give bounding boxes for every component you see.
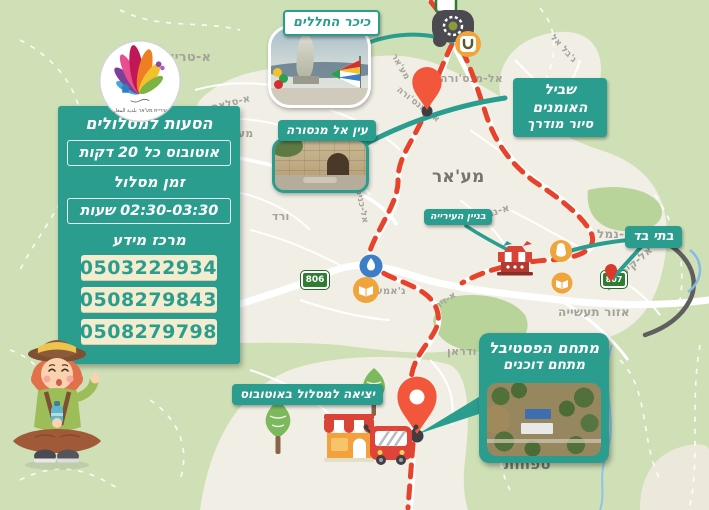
ein-al-mansura-photo[interactable] (272, 138, 369, 193)
municipality-logo: עיריית מע'אר بلدية المغار (97, 39, 183, 125)
logo-text: עיריית מע'אר بلدية المغار (112, 108, 167, 114)
artists-trail-line2: סיור מודרך (518, 117, 602, 133)
book-landmark-icon (353, 277, 379, 303)
photo-plaza (271, 88, 368, 105)
aerial-blue-roof (525, 409, 551, 419)
festival-line1: מתחם הפסטיבל (479, 339, 609, 357)
shop-icon (324, 414, 374, 462)
olive-press-icon (550, 240, 572, 262)
panel-info-center: מרכז מידע (58, 231, 240, 249)
bus-departure-label: יציאה למסלול באוטובוס (240, 387, 375, 401)
olive-presses-label: בתי בד (633, 229, 674, 244)
panel-bus-frequency: אוטובוס כל 20 דקות (67, 140, 231, 166)
panel-route-time-label: זמן מסלול (58, 173, 240, 191)
callout-artists-trail[interactable]: שביל האומנים סיור מודרך (513, 78, 607, 137)
phone-number-2[interactable]: 0508279843 (81, 287, 217, 313)
marker-807-icon (605, 264, 617, 282)
phone-number-1[interactable]: 0503222934 (81, 255, 217, 281)
monument-icon (455, 31, 481, 57)
festival-map: א-טריק א-סלאם מערב אל-מנס'ורה מע'אר ורד … (0, 0, 709, 510)
callout-olive-presses[interactable]: בתי בד (625, 226, 682, 248)
aerial-road (487, 439, 601, 443)
callout-bus-departure[interactable]: יציאה למסלול באוטובוס (232, 384, 383, 405)
callout-connectors (352, 35, 641, 277)
festival-line2: מתחם דוכנים (479, 357, 609, 373)
aerial-white-building (521, 423, 553, 434)
festival-card[interactable]: מתחם הפסטיבל מתחם דוכנים (479, 333, 609, 463)
callout-city-hall[interactable]: בניין העירייה (424, 209, 492, 225)
photo-sculpture-3 (274, 80, 283, 89)
callout-memorial-square[interactable]: כיכר החללים (283, 10, 380, 36)
photo-pedestal (293, 76, 319, 84)
callout-ein-al-mansura[interactable]: עין אל מנסורה (278, 120, 376, 141)
festival-aerial-photo (487, 383, 601, 456)
photo-path (303, 177, 337, 183)
tree-icon (266, 400, 291, 454)
book-landmark-icon-2 (552, 273, 573, 294)
artists-trail-line1: שביל האומנים (518, 82, 602, 117)
callout-ein-label: עין אל מנסורה (286, 123, 368, 137)
city-hall-label: בניין העירייה (430, 211, 486, 222)
panel-route-duration: 02:30-03:30 שעות (67, 198, 231, 224)
pin-ein-al-mansura[interactable] (412, 67, 441, 117)
aerial-trees (487, 383, 601, 456)
spring-icon (360, 255, 383, 278)
memorial-square-photo[interactable] (268, 25, 371, 108)
hiker-character (5, 325, 110, 475)
callout-memorial-square-label: כיכר החללים (293, 15, 370, 30)
